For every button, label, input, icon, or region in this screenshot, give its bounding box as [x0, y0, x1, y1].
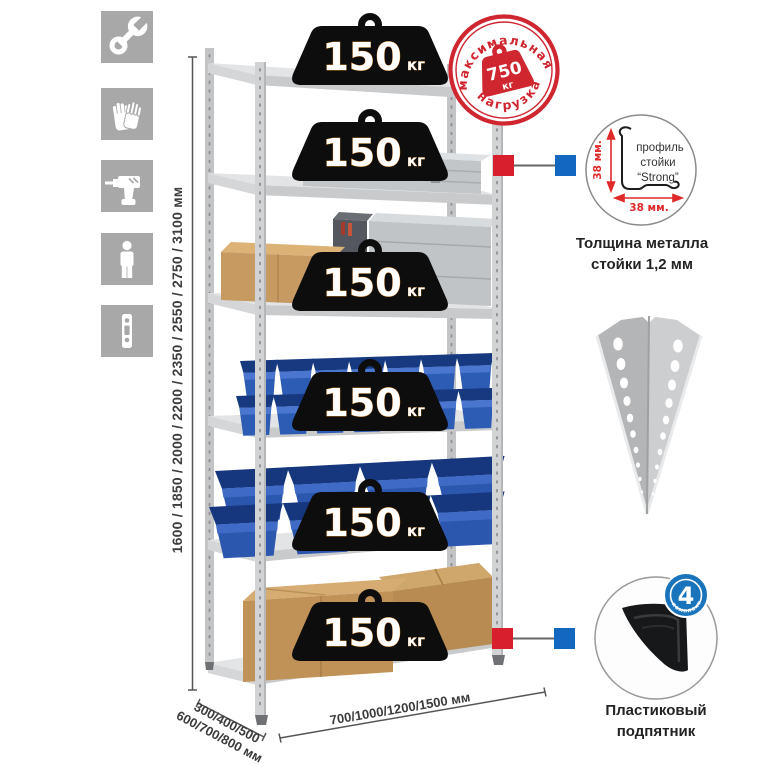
product-diagram: 1600 / 1850 / 2000 / 2200 / 2350 / 2550 …	[0, 0, 765, 765]
included-count: 4	[678, 582, 695, 610]
profile-dim-vertical: 38 мм.	[592, 140, 604, 179]
profile-caption-line1: Толщина металла	[558, 233, 726, 254]
load-badge-5: 150 кг	[290, 478, 450, 556]
load-badge-3: 150 кг	[290, 238, 450, 316]
load-unit: кг	[407, 402, 425, 420]
load-badge-6: 150 кг	[290, 588, 450, 666]
plastic-foot-detail: 4 в комплекте	[592, 570, 724, 707]
foot-caption: Пластиковый подпятник	[570, 700, 742, 742]
load-value: 150	[322, 611, 401, 655]
profile-label-1: профиль	[636, 142, 684, 154]
bottom-connector-blue-marker	[554, 628, 575, 649]
top-connector-red-marker	[493, 155, 514, 176]
profile-label-3: “Strong”	[637, 172, 679, 184]
top-connector-blue-marker	[555, 155, 576, 176]
load-value: 150	[322, 35, 401, 79]
load-value: 150	[322, 381, 401, 425]
load-unit: кг	[407, 282, 425, 300]
angle-post-image	[593, 310, 705, 533]
load-badge-2: 150 кг	[290, 108, 450, 186]
load-value: 150	[322, 131, 401, 175]
load-unit: кг	[407, 632, 425, 650]
load-badge-4: 150 кг	[290, 358, 450, 436]
load-value: 150	[322, 501, 401, 545]
foot-caption-line2: подпятник	[570, 721, 742, 742]
profile-caption-line2: стойки 1,2 мм	[558, 254, 726, 275]
load-unit: кг	[407, 56, 425, 74]
profile-caption: Толщина металла стойки 1,2 мм	[558, 233, 726, 275]
load-unit: кг	[407, 152, 425, 170]
profile-label-2: стойки	[640, 157, 675, 169]
load-badge-1: 150 кг	[290, 12, 450, 90]
bottom-connector-red-marker	[492, 628, 513, 649]
height-dimension-label: 1600 / 1850 / 2000 / 2200 / 2350 / 2550 …	[169, 100, 185, 640]
foot-caption-line1: Пластиковый	[570, 700, 742, 721]
post-profile-detail: 38 мм. 38 мм. профиль стойки “Strong”	[583, 112, 699, 233]
profile-dim-horizontal: 38 мм.	[629, 202, 668, 214]
load-unit: кг	[407, 522, 425, 540]
load-value: 150	[322, 261, 401, 305]
